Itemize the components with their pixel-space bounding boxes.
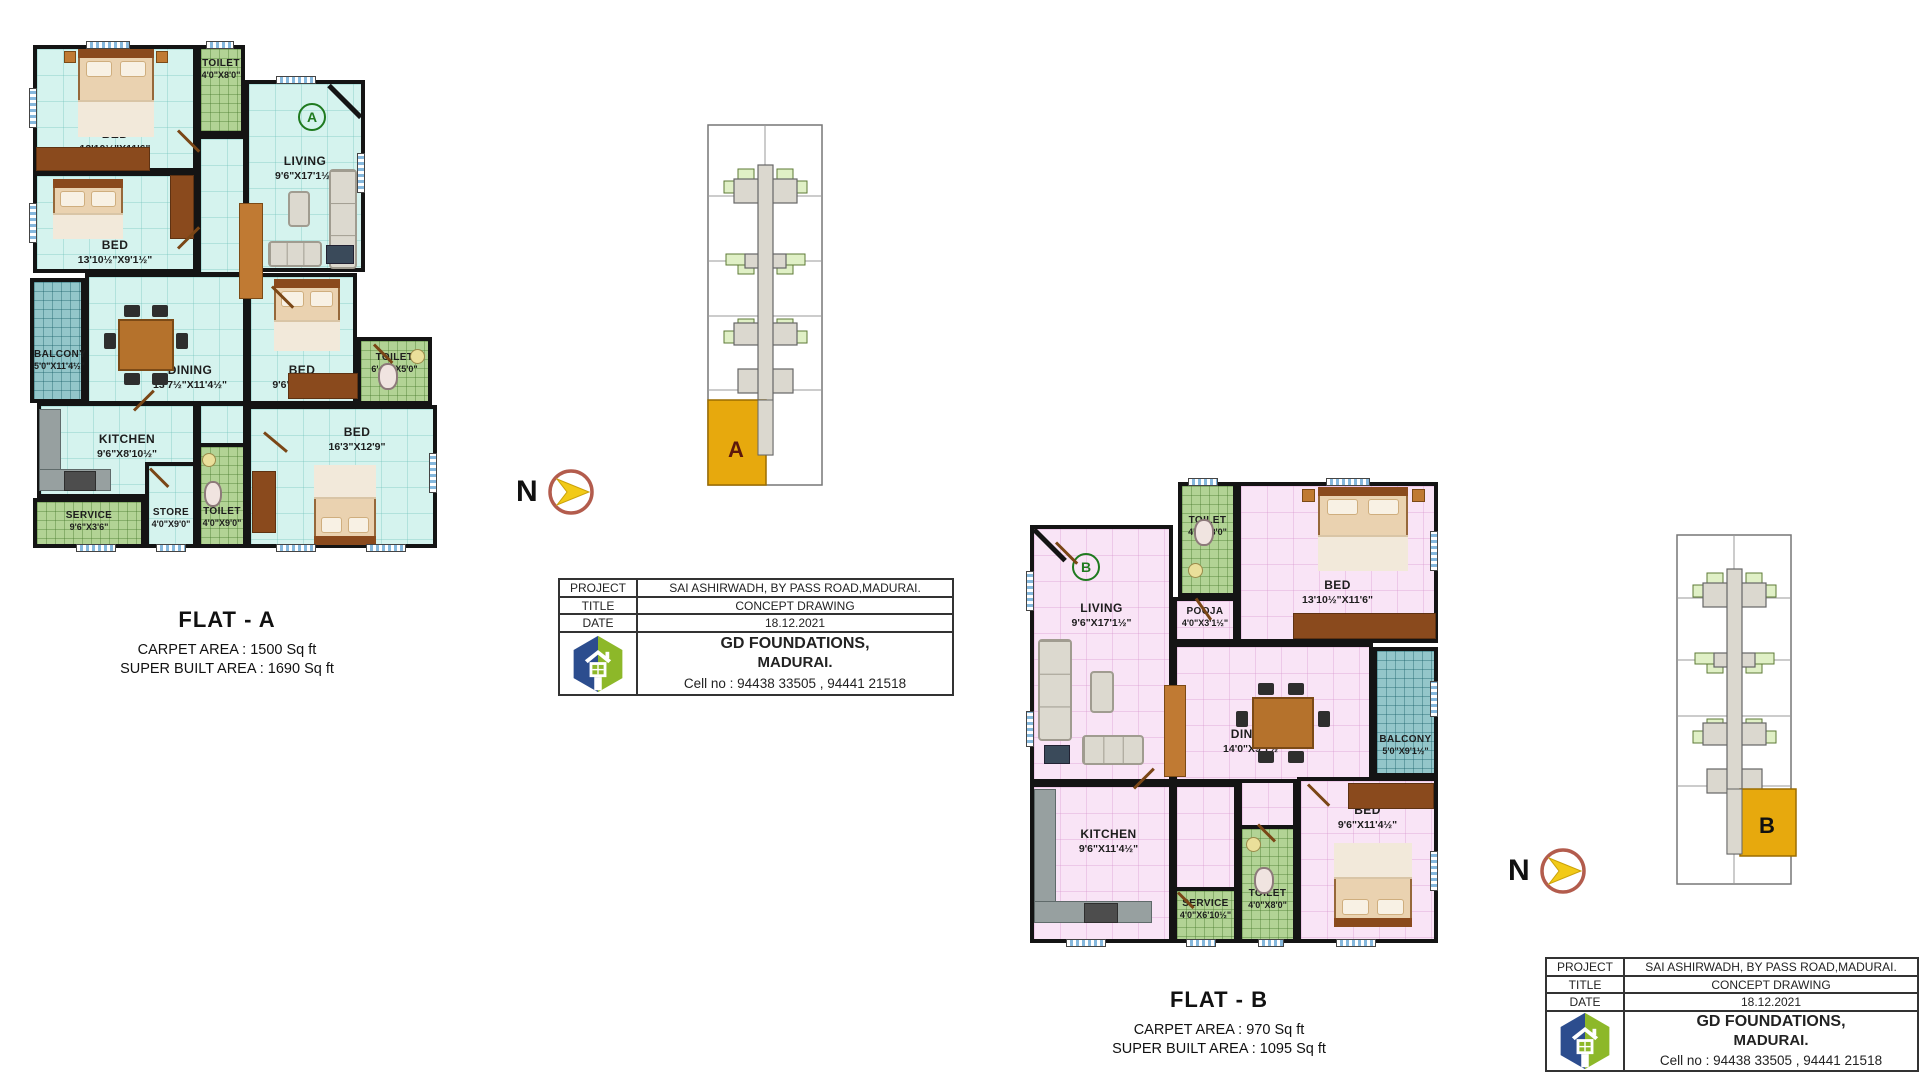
- flat-b-plan: TOILET4'0"X8'0" BED13'10½"X11'6" LIVING9…: [1026, 471, 1446, 951]
- chair-icon: [124, 305, 140, 317]
- company-info: GD FOUNDATIONS, MADURAI. Cell no : 94438…: [637, 632, 953, 695]
- flat-b-title: FLAT - B: [1073, 987, 1365, 1013]
- wardrobe-icon: [252, 471, 276, 533]
- stove-icon: [64, 471, 96, 491]
- company-logo: [1546, 1011, 1624, 1071]
- nightstand-icon: [1412, 489, 1425, 502]
- title-block-b: PROJECT SAI ASHIRWADH, BY PASS ROAD,MADU…: [1545, 957, 1919, 1072]
- cabinet-icon: [1164, 685, 1186, 777]
- nightstand-icon: [1302, 489, 1315, 502]
- company-phone: Cell no : 94438 33505 , 94441 21518: [1660, 1053, 1882, 1070]
- washbasin-icon: [1188, 563, 1203, 578]
- sofa-icon: [1038, 639, 1072, 741]
- flat-b-room-pooja: POOJA4'0"X3'1½": [1173, 597, 1237, 643]
- title-block-value: CONCEPT DRAWING: [637, 597, 953, 614]
- window-icon: [366, 544, 406, 552]
- window-icon: [206, 41, 234, 49]
- wardrobe-icon: [288, 373, 358, 399]
- chair-icon: [176, 333, 188, 349]
- title-block-label: DATE: [1546, 993, 1624, 1011]
- flat-b-caption: FLAT - B CARPET AREA : 970 Sq ft SUPER B…: [1073, 987, 1365, 1060]
- flat-b-super-built-area: SUPER BUILT AREA : 1095 Sq ft: [1073, 1041, 1365, 1057]
- window-icon: [429, 453, 437, 493]
- key-plan-a: A: [698, 123, 833, 498]
- window-icon: [1026, 711, 1034, 747]
- double-bed-icon: [53, 179, 123, 239]
- north-arrow-b: N: [1508, 845, 1589, 897]
- room-label: TOILET4'0"X9'0": [201, 505, 243, 530]
- double-bed-icon: [78, 49, 154, 137]
- double-bed-icon: [314, 465, 376, 545]
- title-block-label: TITLE: [1546, 976, 1624, 993]
- flat-a-marker: A: [298, 103, 326, 131]
- flat-a-room-balcony: BALCONY5'0"X11'4½": [30, 278, 85, 403]
- window-icon: [29, 88, 37, 128]
- drawing-sheet: BED13'10½"X11'6" TOILET4'0"X8'0" LIVING9…: [0, 0, 1920, 1080]
- double-bed-icon: [1318, 487, 1408, 571]
- room-label: BED13'10½"X11'6": [1241, 578, 1434, 607]
- chair-icon: [104, 333, 116, 349]
- north-letter: N: [516, 475, 538, 509]
- loveseat-icon: [268, 241, 322, 267]
- washbasin-icon: [1246, 837, 1261, 852]
- flat-a-passage: [197, 402, 247, 447]
- chair-icon: [124, 373, 140, 385]
- dining-table-icon: [118, 319, 174, 371]
- flat-b-carpet-area: CARPET AREA : 970 Sq ft: [1073, 1022, 1365, 1038]
- north-arrow-a: N: [516, 466, 597, 518]
- double-bed-icon: [1334, 843, 1412, 927]
- flat-b-hall: [1173, 783, 1238, 891]
- title-block-a: PROJECT SAI ASHIRWADH, BY PASS ROAD,MADU…: [558, 578, 954, 696]
- title-block-value: SAI ASHIRWADH, BY PASS ROAD,MADURAI.: [1624, 958, 1918, 976]
- room-label: SERVICE9'6"X3'6": [37, 509, 141, 534]
- window-icon: [1336, 939, 1376, 947]
- title-block-label: TITLE: [559, 597, 637, 614]
- window-icon: [276, 544, 316, 552]
- chair-icon: [1318, 711, 1330, 727]
- window-icon: [1430, 681, 1438, 717]
- chair-icon: [1258, 683, 1274, 695]
- toilet-wc-icon: [204, 481, 222, 507]
- washbasin-icon: [202, 453, 216, 467]
- flat-a-title: FLAT - A: [82, 607, 372, 633]
- room-label: KITCHEN9'6"X11'4½": [1048, 827, 1169, 856]
- company-phone: Cell no : 94438 33505 , 94441 21518: [684, 676, 906, 693]
- chair-icon: [1236, 711, 1248, 727]
- chair-icon: [1288, 683, 1304, 695]
- flat-b-passage: [1238, 777, 1297, 829]
- window-icon: [1430, 851, 1438, 891]
- company-name: GD FOUNDATIONS,: [720, 634, 869, 654]
- flat-a-room-store: STORE4'0"X9'0": [145, 462, 197, 548]
- north-compass-icon: [545, 466, 597, 518]
- chair-icon: [152, 305, 168, 317]
- window-icon: [1430, 531, 1438, 571]
- window-icon: [86, 41, 130, 49]
- room-label: LIVING9'6"X17'1½": [1034, 601, 1169, 630]
- wardrobe-icon: [36, 147, 150, 171]
- window-icon: [1066, 939, 1106, 947]
- nightstand-icon: [64, 51, 76, 63]
- room-label: BED16'3"X12'9": [281, 425, 433, 454]
- window-icon: [1188, 478, 1218, 486]
- flat-b-room-balcony: BALCONY5'0"X9'1½": [1373, 647, 1438, 777]
- nightstand-icon: [156, 51, 168, 63]
- title-block-label: DATE: [559, 614, 637, 632]
- dining-table-icon: [1252, 697, 1314, 749]
- title-block-value: 18.12.2021: [637, 614, 953, 632]
- room-label: STORE4'0"X9'0": [149, 506, 193, 531]
- title-block-label: PROJECT: [1546, 958, 1624, 976]
- window-icon: [156, 544, 186, 552]
- window-icon: [76, 544, 116, 552]
- north-letter: N: [1508, 854, 1530, 888]
- room-label: TOILET4'0"X8'0": [201, 57, 241, 82]
- armchair-icon: [1090, 671, 1114, 713]
- flat-a-room-service: SERVICE9'6"X3'6": [33, 498, 145, 548]
- flat-a-room-toilet-top: TOILET4'0"X8'0": [197, 45, 245, 135]
- flat-a-carpet-area: CARPET AREA : 1500 Sq ft: [82, 642, 372, 658]
- room-label: BALCONY5'0"X11'4½": [34, 348, 81, 373]
- flat-a-plan: BED13'10½"X11'6" TOILET4'0"X8'0" LIVING9…: [26, 33, 446, 557]
- stove-icon: [1084, 903, 1118, 923]
- washbasin-icon: [410, 349, 425, 364]
- kitchen-counter-icon: [1034, 789, 1056, 905]
- window-icon: [1258, 939, 1284, 947]
- window-icon: [276, 76, 316, 84]
- title-block-value: 18.12.2021: [1624, 993, 1918, 1011]
- north-compass-icon: [1537, 845, 1589, 897]
- toilet-wc-icon: [378, 363, 398, 390]
- room-label: KITCHEN9'6"X8'10½": [61, 432, 193, 461]
- window-icon: [1026, 571, 1034, 611]
- title-block-value: SAI ASHIRWADH, BY PASS ROAD,MADURAI.: [637, 579, 953, 597]
- room-label: BALCONY5'0"X9'1½": [1377, 733, 1434, 758]
- gd-foundations-logo-icon: [1558, 1011, 1612, 1071]
- company-city: MADURAI.: [1734, 1032, 1809, 1051]
- key-plan-b-unit-label: B: [1759, 813, 1775, 838]
- wardrobe-icon: [1348, 783, 1434, 809]
- double-bed-icon: [274, 279, 340, 351]
- wardrobe-icon: [170, 175, 194, 239]
- company-info: GD FOUNDATIONS, MADURAI. Cell no : 94438…: [1624, 1011, 1918, 1071]
- chair-icon: [1258, 751, 1274, 763]
- company-city: MADURAI.: [758, 654, 833, 673]
- flat-a-caption: FLAT - A CARPET AREA : 1500 Sq ft SUPER …: [82, 607, 372, 680]
- window-icon: [1326, 478, 1370, 486]
- tv-unit-icon: [1044, 745, 1070, 764]
- company-logo: [559, 632, 637, 695]
- gd-foundations-logo-icon: [571, 634, 625, 694]
- toilet-wc-icon: [1194, 519, 1214, 546]
- flat-b-marker: B: [1072, 553, 1100, 581]
- window-icon: [357, 153, 365, 193]
- cabinet-icon: [239, 203, 263, 299]
- kitchen-counter-icon: [39, 409, 61, 471]
- company-name: GD FOUNDATIONS,: [1696, 1012, 1845, 1032]
- title-block-label: PROJECT: [559, 579, 637, 597]
- loveseat-icon: [1082, 735, 1144, 765]
- key-plan-a-unit-label: A: [728, 437, 744, 462]
- room-label: BED13'10½"X9'1½": [37, 238, 193, 267]
- chair-icon: [152, 373, 168, 385]
- toilet-wc-icon: [1254, 867, 1274, 894]
- wardrobe-icon: [1293, 613, 1436, 639]
- tv-unit-icon: [326, 245, 354, 264]
- key-plan-b: B: [1671, 533, 1798, 891]
- title-block-value: CONCEPT DRAWING: [1624, 976, 1918, 993]
- window-icon: [29, 203, 37, 243]
- window-icon: [1186, 939, 1216, 947]
- chair-icon: [1288, 751, 1304, 763]
- armchair-icon: [288, 191, 310, 227]
- flat-a-super-built-area: SUPER BUILT AREA : 1690 Sq ft: [82, 661, 372, 677]
